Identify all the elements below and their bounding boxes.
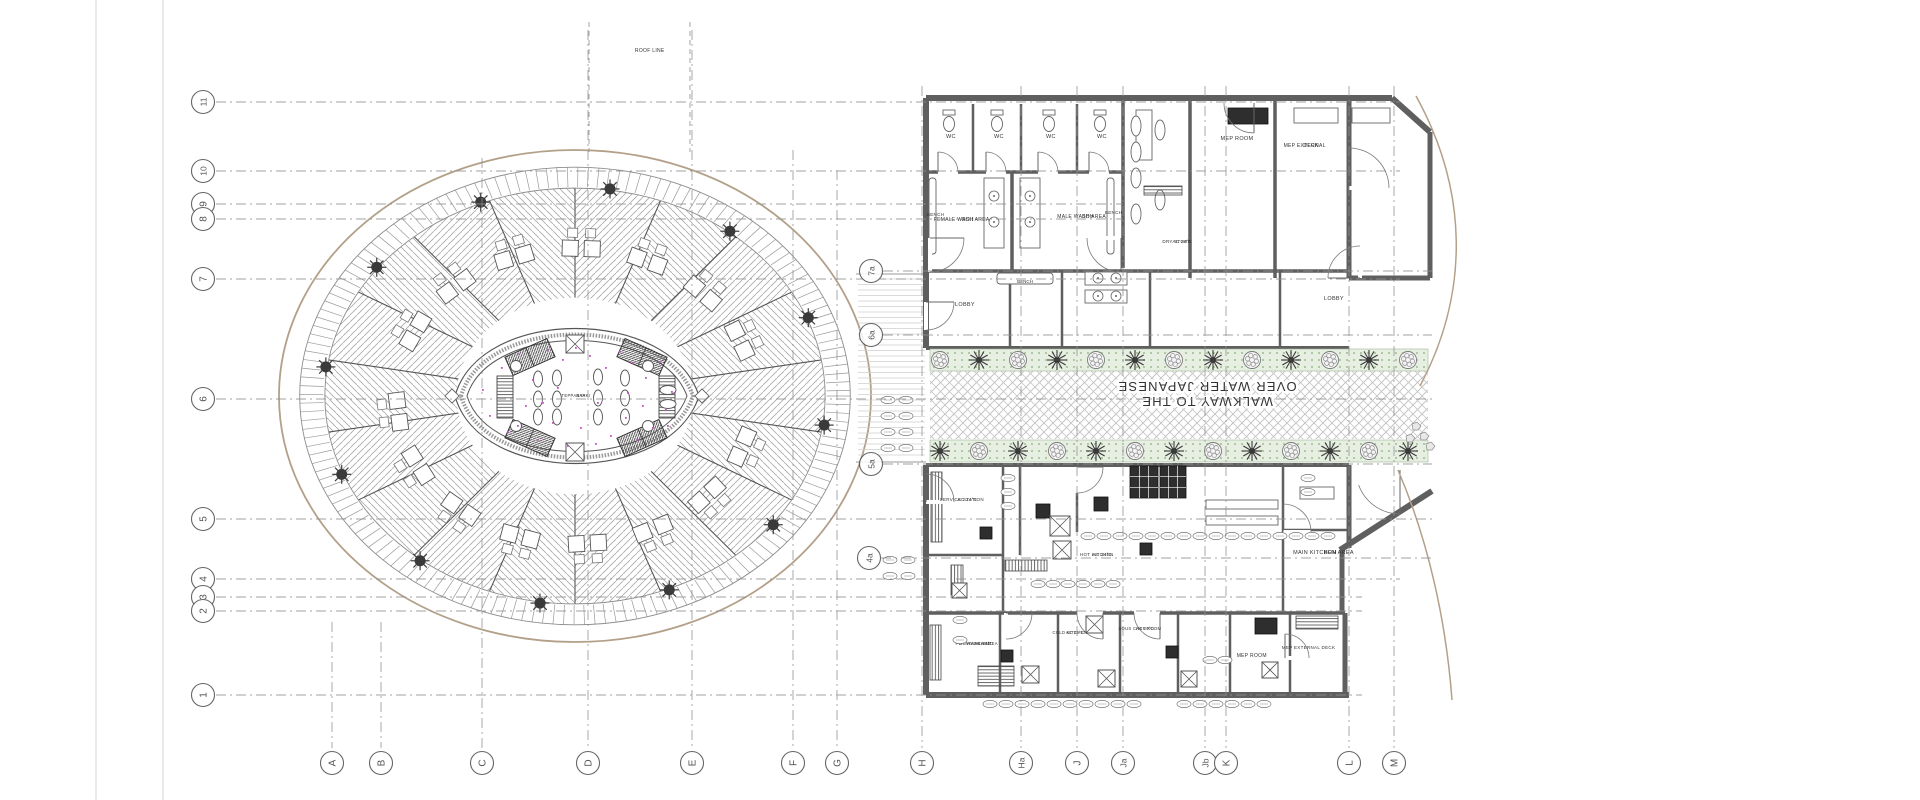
grid-bubble-label: 7	[198, 276, 209, 282]
table	[391, 413, 409, 431]
grid-bubble-H: H	[911, 752, 934, 775]
light-dot	[632, 362, 634, 364]
shelving	[1296, 616, 1338, 629]
counter	[984, 178, 1004, 248]
grid-bubble-label: Ja	[1118, 758, 1128, 767]
door	[1006, 613, 1032, 639]
equipment-tag	[1097, 532, 1111, 539]
equipment-tag	[1091, 580, 1105, 587]
grid-bubble-7a: 7a	[860, 260, 883, 283]
counter-west	[497, 376, 513, 418]
fringe-tick	[437, 198, 449, 215]
frond	[424, 564, 427, 567]
basin-drain	[1097, 295, 1099, 297]
light-dot	[671, 391, 673, 393]
fixture	[1131, 204, 1141, 224]
fringe-tick	[455, 190, 465, 208]
fringe-tick	[442, 579, 453, 596]
fringe-tick	[644, 176, 651, 195]
room-label-mep-room-bottom: MEP ROOM	[1237, 653, 1267, 659]
walkway-label-line: OVER WATER JAPANESE	[1117, 379, 1296, 394]
grid-bubble-E: E	[681, 752, 704, 775]
frond	[484, 195, 487, 198]
light-dot	[489, 415, 491, 417]
fringe-tick	[763, 535, 781, 548]
equipment-tag	[1081, 532, 1095, 539]
fringe-tick	[632, 600, 637, 619]
grid-bubble-5: 5	[192, 508, 215, 531]
equipment-tag	[1177, 532, 1191, 539]
fringe-tick	[771, 253, 789, 265]
label-line: LOBBY	[955, 302, 975, 308]
toilet	[992, 117, 1003, 132]
fringe-tick	[495, 177, 502, 196]
stool	[643, 361, 654, 372]
door-swing	[1038, 152, 1058, 172]
frond	[777, 528, 780, 531]
grid-bubble-G: G	[826, 752, 849, 775]
table	[590, 534, 607, 551]
palm-tree-icon	[367, 258, 386, 277]
fringe-tick	[511, 599, 516, 618]
grid-bubble-label: D	[583, 759, 594, 766]
label-line: WC	[1097, 134, 1107, 140]
door	[986, 152, 1006, 172]
tree-icon	[971, 443, 988, 460]
bench	[1107, 178, 1114, 254]
fringe-tick	[686, 584, 696, 602]
fringe-tick	[804, 482, 826, 490]
grid-bubble-8: 8	[192, 208, 215, 231]
door-swing	[1328, 246, 1360, 278]
fringe-tick	[769, 529, 787, 542]
roof-line-label: ROOF LINE	[635, 48, 665, 54]
fringe-tick	[378, 236, 395, 250]
palm-tree-icon	[720, 222, 739, 241]
fringe-tick	[304, 434, 327, 438]
fringe-tick	[681, 188, 691, 206]
grid-bubble-label: L	[1344, 760, 1355, 766]
fringe-tick	[386, 230, 402, 244]
tree-icon	[1166, 352, 1183, 369]
fixture	[1131, 142, 1141, 162]
grid-bubble-label: 8	[198, 216, 209, 222]
frond	[812, 321, 815, 324]
room-label-sous-chef-room: SOUS CHEF ROOMAC 20°C	[1118, 626, 1161, 631]
palm-tree-icon	[660, 580, 679, 599]
fringe-tick	[315, 465, 337, 472]
fringe-tick	[312, 458, 335, 464]
door	[1089, 152, 1109, 172]
seat	[660, 386, 676, 395]
grid-bubble-label: 6a	[866, 330, 876, 340]
label-line: AC 24°C	[1093, 552, 1113, 557]
room-label-service-station: SERVICE STATIONAC 24°C	[940, 497, 984, 502]
palm-tree-icon	[530, 594, 549, 613]
equipment-tag	[1305, 532, 1319, 539]
equipment-tag	[883, 572, 897, 579]
fringe-tick	[525, 171, 529, 190]
fringe-tick	[546, 168, 548, 188]
floor-plan-svg: TEPPANYAKIBARWCWCWCWCFEMALE WASH AREABOH…	[0, 0, 1920, 800]
room-label-bench-left: BENCH	[927, 212, 944, 217]
grid-bubble-label: 7a	[866, 266, 876, 276]
grid-bubble-label: M	[1389, 759, 1400, 767]
grid-bubble-label: 10	[198, 166, 208, 176]
fringe-tick	[334, 285, 355, 295]
toilet	[1095, 117, 1106, 132]
fringe-tick	[650, 596, 657, 615]
fixture	[1131, 116, 1141, 136]
equipment-tag	[899, 396, 913, 403]
seat	[553, 409, 562, 425]
chair	[586, 229, 596, 238]
fringe-tick	[800, 489, 821, 498]
tree-icon	[1088, 352, 1105, 369]
fringe-tick	[737, 221, 752, 236]
fringe-tick	[309, 450, 332, 455]
fringe-tick	[793, 282, 814, 292]
equipment-tag	[1241, 700, 1255, 707]
seat	[594, 369, 603, 385]
fringe-tick	[798, 289, 819, 298]
grid-bubble-label: 5a	[866, 459, 876, 469]
fringe-tick	[419, 208, 432, 224]
palm-tree-icon	[601, 179, 620, 198]
light-dot	[562, 359, 564, 361]
fringe-tick	[301, 377, 325, 379]
frond	[614, 182, 617, 185]
label-line: AC 24°C	[975, 641, 993, 646]
grid-bubble-label: K	[1221, 759, 1232, 766]
door-swing	[1087, 238, 1121, 272]
grid-bubble-6a: 6a	[860, 324, 883, 347]
grid-bubble-label: 3	[198, 594, 209, 600]
room-label-mep-room-top: MEP ROOM	[1220, 136, 1253, 142]
light-dot	[619, 351, 621, 353]
label-line: WC	[994, 134, 1004, 140]
door	[1349, 148, 1389, 188]
equipment-tag	[1113, 532, 1127, 539]
fringe-tick	[698, 196, 710, 213]
fringe-tick	[823, 355, 846, 358]
equipment-tag	[1127, 700, 1141, 707]
equipment-tag	[1177, 700, 1191, 707]
label-line: MEP ROOM	[1237, 653, 1267, 659]
fringe-tick	[706, 201, 718, 218]
seat	[660, 400, 676, 409]
fringe-tick	[813, 322, 835, 328]
room-label-bench-right: BENCH	[1105, 210, 1122, 215]
light-dot	[637, 439, 639, 441]
fringe-tick	[695, 580, 706, 597]
equipment-tag	[881, 412, 895, 419]
light-dot	[625, 417, 627, 419]
equipment-tag	[901, 556, 915, 563]
fringe-tick	[501, 597, 507, 616]
equipment-tag	[1273, 532, 1287, 539]
fringe-tick	[826, 404, 850, 405]
fringe-tick	[783, 267, 803, 278]
fringe-tick	[402, 218, 417, 233]
door-swing	[1077, 467, 1103, 493]
teppanyaki-bar-label: TEPPANYAKIBAR	[562, 393, 591, 398]
cistern	[991, 110, 1003, 115]
fringe-tick	[484, 180, 492, 199]
grid-bubble-F: F	[782, 752, 805, 775]
fringe-tick	[796, 496, 817, 505]
fringe-tick	[824, 364, 847, 367]
fringe-tick	[821, 347, 844, 351]
room-label-lobby-right: LOBBY	[1324, 296, 1344, 302]
frond	[335, 478, 338, 481]
label-line: AC 24°C	[1066, 630, 1084, 635]
grid-bubble-D: D	[577, 752, 600, 775]
fringe-tick	[391, 551, 407, 566]
fringe-tick	[826, 382, 850, 383]
fringe-tick	[338, 502, 358, 512]
label-line: BAR	[576, 393, 586, 398]
equipment-tag	[901, 572, 915, 579]
tree-icon	[1244, 352, 1261, 369]
grid-bubble-J: J	[1066, 752, 1089, 775]
grid-bubble-label: 1	[198, 692, 209, 698]
equipment-tag	[881, 444, 895, 451]
room-label-female-wash-area: FEMALE WASH AREABOH	[934, 217, 990, 223]
light-dot	[645, 377, 647, 379]
equipment-dark	[980, 527, 992, 539]
grid-bubble-1: 1	[192, 684, 215, 707]
grid-bubble-A: A	[321, 752, 344, 775]
fringe-tick	[446, 194, 457, 211]
fringe-tick	[802, 297, 823, 306]
light-dot	[597, 402, 599, 404]
equipment-tag	[1061, 580, 1075, 587]
room-label-main-kitchen-area: MAIN KITCHEN AREABOH	[1293, 550, 1354, 556]
equipment-tag	[1063, 700, 1077, 707]
fringe-tick	[427, 203, 440, 220]
cistern	[1094, 110, 1106, 115]
tree-icon	[1010, 352, 1027, 369]
light-dot	[542, 402, 544, 404]
stool	[643, 421, 654, 432]
tree-icon	[1049, 443, 1066, 460]
light-dot	[627, 392, 629, 394]
chair	[377, 399, 387, 410]
shelving	[1005, 560, 1047, 571]
tree-icon	[1322, 352, 1339, 369]
equipment-tag	[1225, 532, 1239, 539]
frond	[733, 225, 736, 228]
equipment-tag	[1047, 700, 1061, 707]
label-line: LOBBY	[1324, 296, 1344, 302]
fringe-tick	[553, 604, 555, 624]
equipment-tag	[1015, 700, 1029, 707]
equipment-tag	[899, 412, 913, 419]
seat	[534, 409, 543, 425]
label-line: BOH	[1324, 550, 1337, 556]
grid-bubble-label: 4	[198, 576, 209, 582]
fringe-tick	[433, 575, 445, 592]
equipment-tag	[1257, 532, 1271, 539]
door	[1087, 238, 1121, 272]
equipment-tag	[1129, 532, 1143, 539]
frond	[603, 182, 606, 185]
equipment-tag	[1289, 532, 1303, 539]
grid-bubble-Ja: Ja	[1112, 752, 1135, 775]
drawing-sheet: TEPPANYAKIBARWCWCWCWCFEMALE WASH AREABOH…	[0, 0, 1920, 800]
door-swing	[1283, 504, 1311, 532]
equipment-tag	[881, 428, 895, 435]
grid-bubble-label: C	[477, 759, 488, 766]
frond	[474, 195, 477, 198]
shelving	[1144, 186, 1182, 195]
light-dot	[482, 389, 484, 391]
basin-drain	[1115, 295, 1117, 297]
grid-bubble-label: B	[376, 759, 387, 766]
basin-drain	[993, 221, 995, 223]
fringe-tick	[351, 263, 370, 274]
fringe-tick	[303, 427, 326, 430]
basin-drain	[993, 195, 995, 197]
label-line: ROOF LINE	[635, 48, 665, 54]
door	[1038, 152, 1058, 172]
fringe-tick	[515, 173, 520, 192]
door-swing	[1006, 613, 1032, 639]
grid-bubble-label: 9	[198, 201, 209, 207]
fringe-tick	[536, 170, 539, 189]
toilet	[1044, 117, 1055, 132]
grid-bubble-label: E	[687, 759, 698, 766]
stool	[511, 361, 522, 372]
grid-bubble-label: 4a	[864, 553, 874, 563]
shelving	[978, 666, 1014, 686]
door-swing	[926, 302, 954, 330]
fringe-tick	[300, 386, 324, 387]
fringe-tick	[677, 587, 687, 605]
light-dot	[567, 445, 569, 447]
grid-bubble-Ha: Ha	[1010, 752, 1033, 775]
light-dot	[501, 367, 503, 369]
palm-tree-icon	[764, 515, 783, 534]
shelving	[931, 472, 942, 542]
fringe-tick	[320, 309, 342, 316]
fringe-tick	[742, 552, 758, 567]
label-line: BENCH	[1105, 210, 1122, 215]
label-line: BOH	[962, 217, 974, 223]
fringe-tick	[310, 334, 333, 339]
equipment-tag	[1106, 580, 1120, 587]
toilet	[944, 117, 955, 132]
fringe-tick	[301, 419, 325, 421]
counter	[1206, 500, 1278, 509]
grid-bubble-label: Ha	[1016, 757, 1026, 768]
palm-tree-icon	[471, 193, 490, 212]
walkway: WALKWAY TO THEOVER WATER JAPANESE	[930, 349, 1428, 462]
equipment-dark	[1228, 108, 1268, 124]
fringe-tick	[812, 467, 834, 474]
fringe-tick	[672, 185, 681, 203]
fringe-tick	[654, 179, 661, 198]
fringe-tick	[563, 605, 564, 625]
light-dot	[547, 349, 549, 351]
table	[521, 529, 541, 549]
fringe-tick	[719, 567, 733, 583]
equipment-tag	[1001, 502, 1015, 509]
fringe-tick	[471, 590, 480, 608]
equipment-tag	[999, 700, 1013, 707]
wall	[1392, 98, 1430, 132]
room-label-bench-mid: BENCH	[1017, 279, 1033, 284]
palm-tree-icon	[316, 357, 335, 376]
frond	[335, 468, 338, 471]
equipment-tag	[983, 700, 997, 707]
fringe-tick	[307, 442, 330, 446]
table	[388, 392, 406, 410]
fringe-tick	[635, 174, 641, 193]
light-dot	[557, 387, 559, 389]
fringe-tick	[815, 459, 838, 465]
equipment-dark	[1140, 543, 1152, 555]
label-line: WC	[1046, 134, 1056, 140]
equipment-tag	[1209, 532, 1223, 539]
walkway-label: WALKWAY TO THEOVER WATER JAPANESE	[1117, 379, 1296, 409]
frond	[319, 370, 322, 373]
frond	[370, 261, 373, 264]
equipment-tag	[1076, 580, 1090, 587]
fringe-tick	[703, 576, 715, 593]
grid-bubble-label: G	[832, 759, 843, 767]
fringe-tick	[689, 192, 700, 210]
equipment-tag	[1031, 580, 1045, 587]
frond	[723, 225, 726, 228]
fringe-tick	[745, 227, 761, 242]
fringe-tick	[735, 558, 750, 573]
chair	[568, 228, 578, 237]
fringe-tick	[416, 566, 430, 582]
fringe-tick	[749, 547, 765, 561]
equipment-tag	[1031, 700, 1045, 707]
seat	[534, 371, 543, 387]
light-dot	[507, 431, 509, 433]
fringe-tick	[791, 503, 811, 513]
light-dot	[517, 425, 519, 427]
fringe-tick	[399, 557, 414, 572]
label-line: AC 20°C	[1136, 626, 1154, 631]
fringe-tick	[452, 583, 463, 601]
door	[1077, 467, 1103, 493]
grid-bubble-label: F	[788, 760, 799, 766]
light-dot	[517, 353, 519, 355]
room-label-hot-kitchen: HOT KITCHENAC 24°C	[1080, 552, 1114, 557]
palm-tree-icon	[332, 465, 351, 484]
grid-bubble-label: A	[327, 759, 338, 766]
grid-bubble-label: J	[1072, 761, 1083, 766]
fringe-tick	[362, 528, 380, 540]
equipment-tag	[881, 396, 895, 403]
door	[1328, 246, 1360, 278]
light-dot	[665, 409, 667, 411]
equipment-dark	[1001, 650, 1013, 662]
room-label-mep-external-deck-top: MEP EXTERNALDECK	[1284, 143, 1326, 149]
fringe-tick	[613, 603, 617, 622]
equipment-tag	[953, 616, 967, 623]
equipment-dark	[1160, 466, 1186, 498]
fringe-tick	[816, 330, 839, 336]
equipment-tag	[1161, 532, 1175, 539]
fringe-tick	[752, 233, 769, 247]
seat	[621, 370, 630, 386]
